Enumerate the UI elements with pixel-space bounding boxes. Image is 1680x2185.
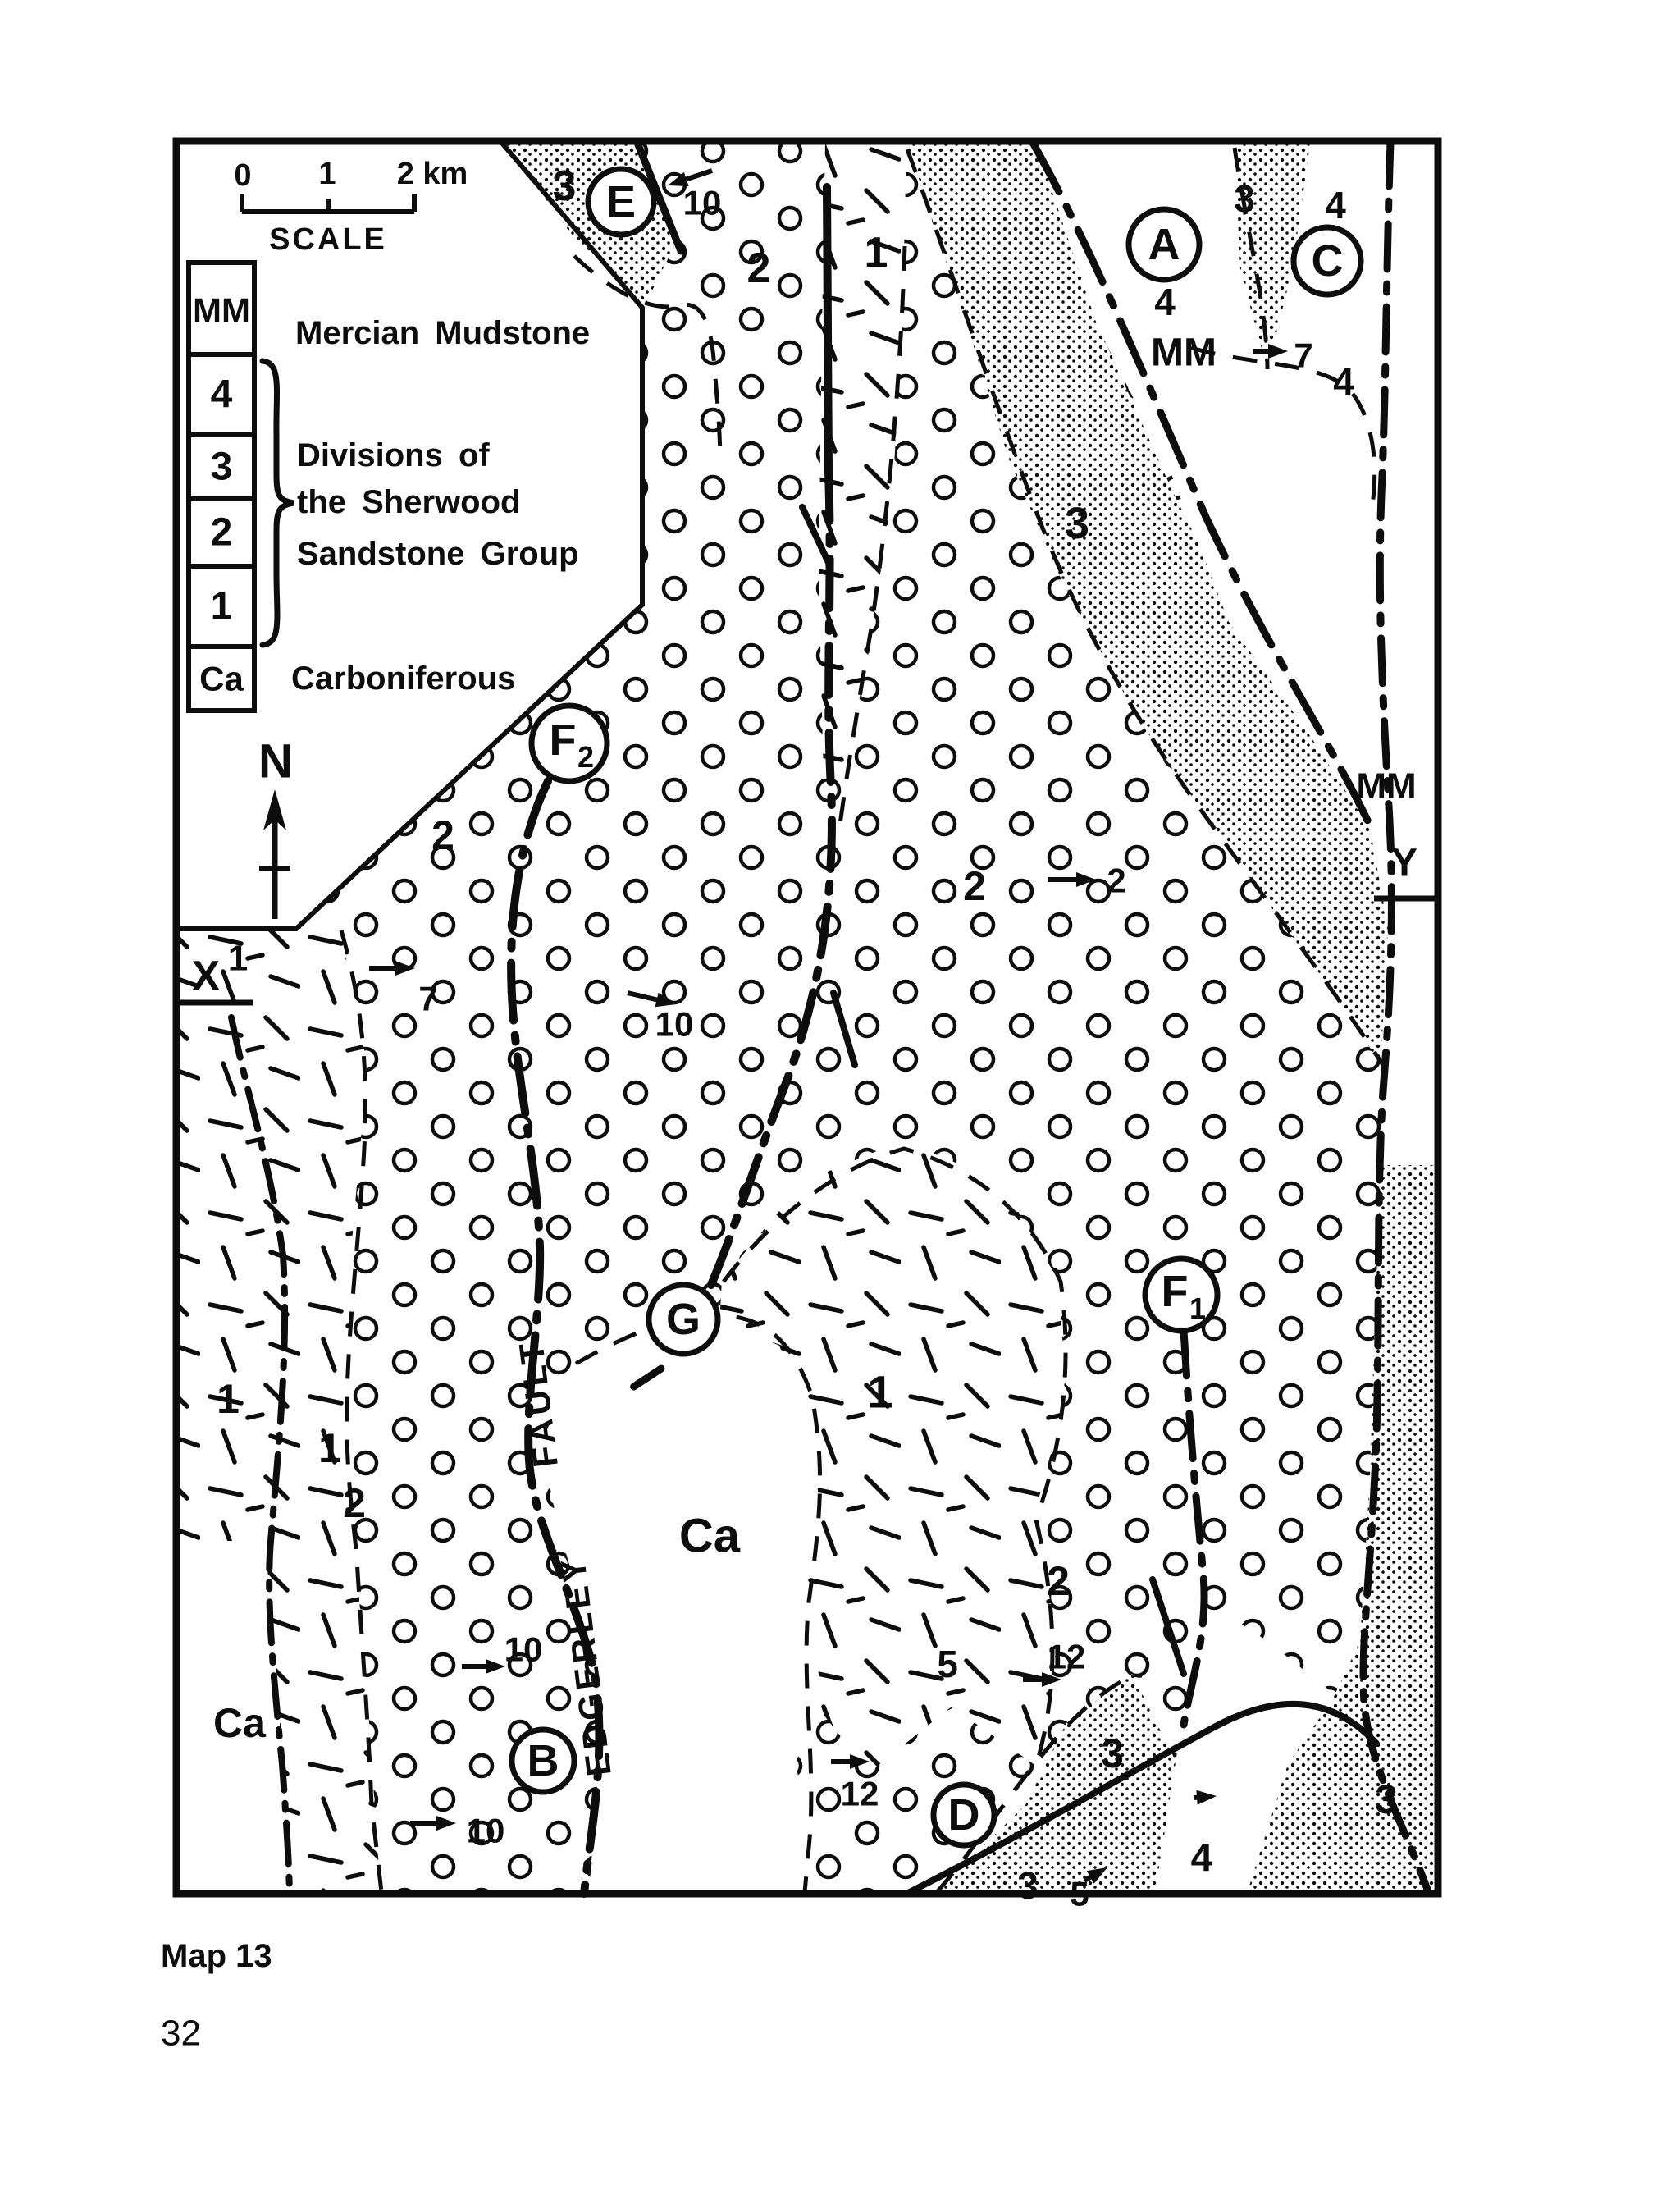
dip-value-10-3: 10 [655,1005,694,1044]
unit-label-3-20: 3 [1017,1864,1039,1907]
map-point-D-letter: D [948,1790,980,1840]
map-point-A-letter: A [1148,220,1180,269]
legend-code-1: 1 [211,585,233,629]
unit-label-1-12: 1 [318,1425,341,1471]
unit-label-2-9: 2 [963,863,986,909]
unit-label-4-4: 4 [1325,184,1346,226]
dip-value-10-5: 10 [504,1630,543,1669]
dip-value-7-1: 7 [1294,336,1312,375]
scale-caption: SCALE [269,222,387,257]
dip-value-12-7: 12 [1048,1638,1086,1676]
area-label-mm-0: MM [1151,331,1217,375]
map-point-C-letter: C [1312,236,1344,286]
dip-value-2-4: 2 [1107,862,1125,900]
unit-label-2-8: 2 [431,812,454,858]
unit-label-5-16: 5 [937,1643,958,1685]
unit-label-1-10: 1 [228,939,248,979]
legend-label-divisions-1: Divisions of [297,437,490,473]
scale-label-1: 1 [318,157,336,191]
dip-value-10-0: 10 [683,184,722,222]
legend-label-divisions-3: Sandstone Group [297,536,579,572]
legend-code-MM: MM [193,291,250,330]
legend-code-4: 4 [211,373,233,417]
unit-label-2-14: 2 [343,1480,366,1526]
north-label: N [258,735,293,789]
legend-label-divisions-2: the Sherwood [297,484,520,520]
area-label-mm-1: MM [1356,766,1416,807]
unit-label-1-2: 1 [865,229,888,277]
unit-label-3-7: 3 [1065,499,1089,548]
map-caption: Map 13 [161,1938,272,1974]
section-label-y: Y [1391,842,1417,885]
map-point-G-letter: G [666,1295,701,1344]
geological-map: 0 1 2 km SCALE MM 4 3 2 1 Ca Mercian Mud… [0,0,1680,2185]
scale-label-2km: 2 km [397,157,468,191]
legend-code-Ca: Ca [199,660,244,698]
page-number: 32 [161,2014,201,2054]
scale-label-0: 0 [234,158,251,193]
legend-code-3: 3 [211,446,233,489]
legend-label-mercian-mudstone: Mercian Mudstone [295,315,590,351]
legend-label-carboniferous: Carboniferous [291,661,515,697]
unit-label-2-1: 2 [747,245,771,292]
unit-label-4-19: 4 [1191,1837,1213,1881]
area-label-ca-2: Ca [679,1510,741,1563]
dip-value-7-2: 7 [418,980,437,1018]
unit-label-2-15: 2 [1047,1558,1070,1604]
legend-code-2: 2 [211,511,233,555]
dip-value-10-6: 10 [467,1812,505,1850]
area-label-ca-3: Ca [213,1700,267,1746]
dip-value-12-8: 12 [841,1775,879,1813]
unit-label-4-5: 4 [1154,281,1176,323]
unit-label-1-13: 1 [867,1366,892,1418]
section-label-x: X [192,953,221,1000]
map-point-B-letter: B [527,1736,559,1785]
unit-label-3-0: 3 [553,162,577,210]
unit-label-4-6: 4 [1333,360,1354,403]
map-point-E-letter: E [606,177,636,226]
scanned-map-page: 0 1 2 km SCALE MM 4 3 2 1 Ca Mercian Mud… [0,0,1680,2185]
unit-label-3-18: 3 [1375,1776,1398,1822]
unit-label-1-11: 1 [217,1376,240,1422]
unit-label-3-3: 3 [1234,177,1255,220]
unit-label-3-17: 3 [1101,1730,1124,1776]
